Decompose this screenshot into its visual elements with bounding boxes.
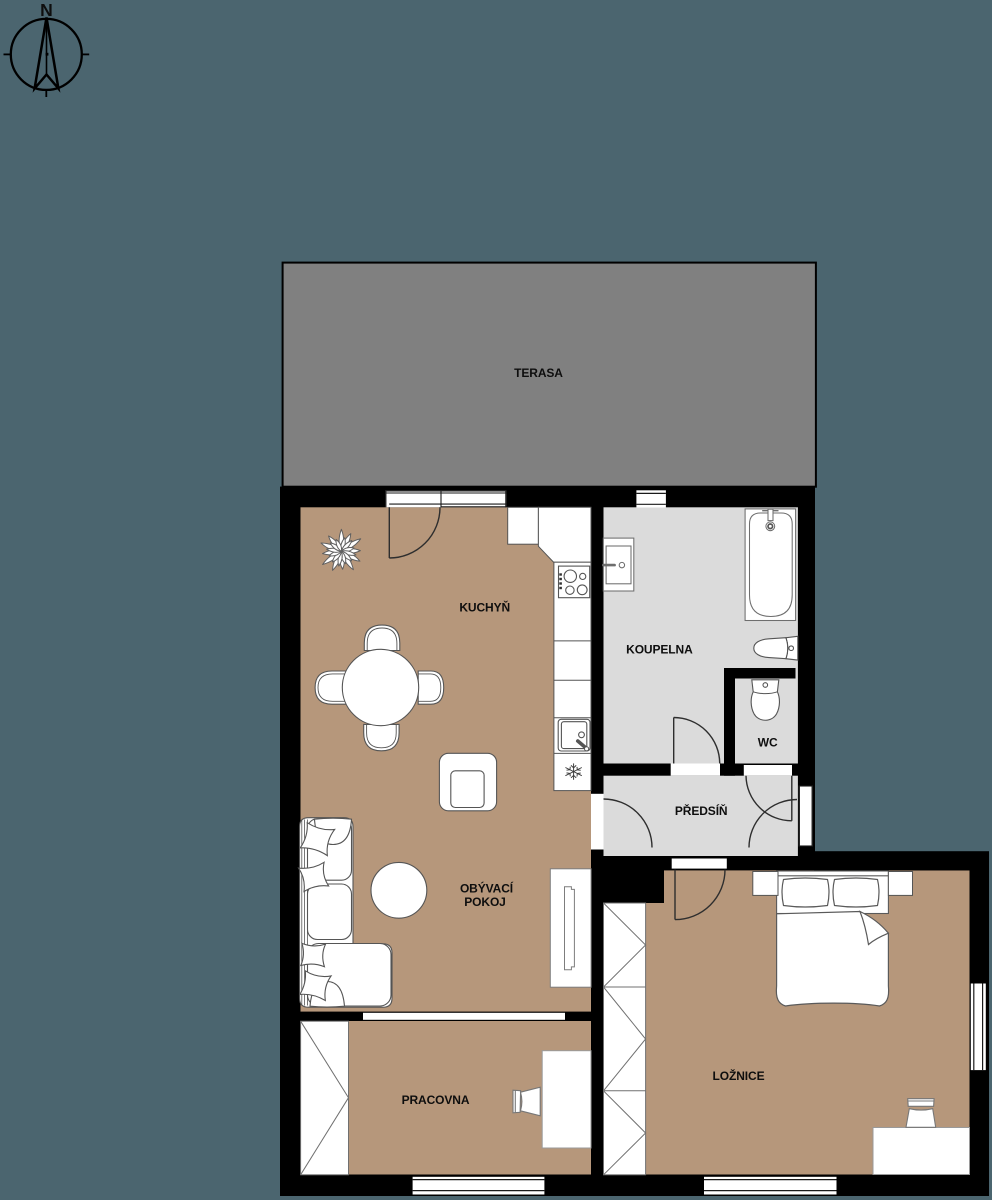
svg-text:PŘEDSÍŇ: PŘEDSÍŇ — [675, 803, 728, 818]
svg-text:N: N — [40, 0, 53, 20]
svg-text:LOŽNICE: LOŽNICE — [713, 1068, 765, 1083]
svg-text:WC: WC — [758, 736, 778, 750]
svg-text:KUCHYŇ: KUCHYŇ — [459, 600, 510, 615]
svg-text:PRACOVNA: PRACOVNA — [402, 1093, 470, 1107]
svg-text:POKOJ: POKOJ — [464, 895, 506, 909]
svg-text:TERASA: TERASA — [514, 366, 563, 380]
svg-text:OBÝVACÍ: OBÝVACÍ — [460, 881, 514, 896]
svg-text:KOUPELNA: KOUPELNA — [626, 643, 693, 657]
